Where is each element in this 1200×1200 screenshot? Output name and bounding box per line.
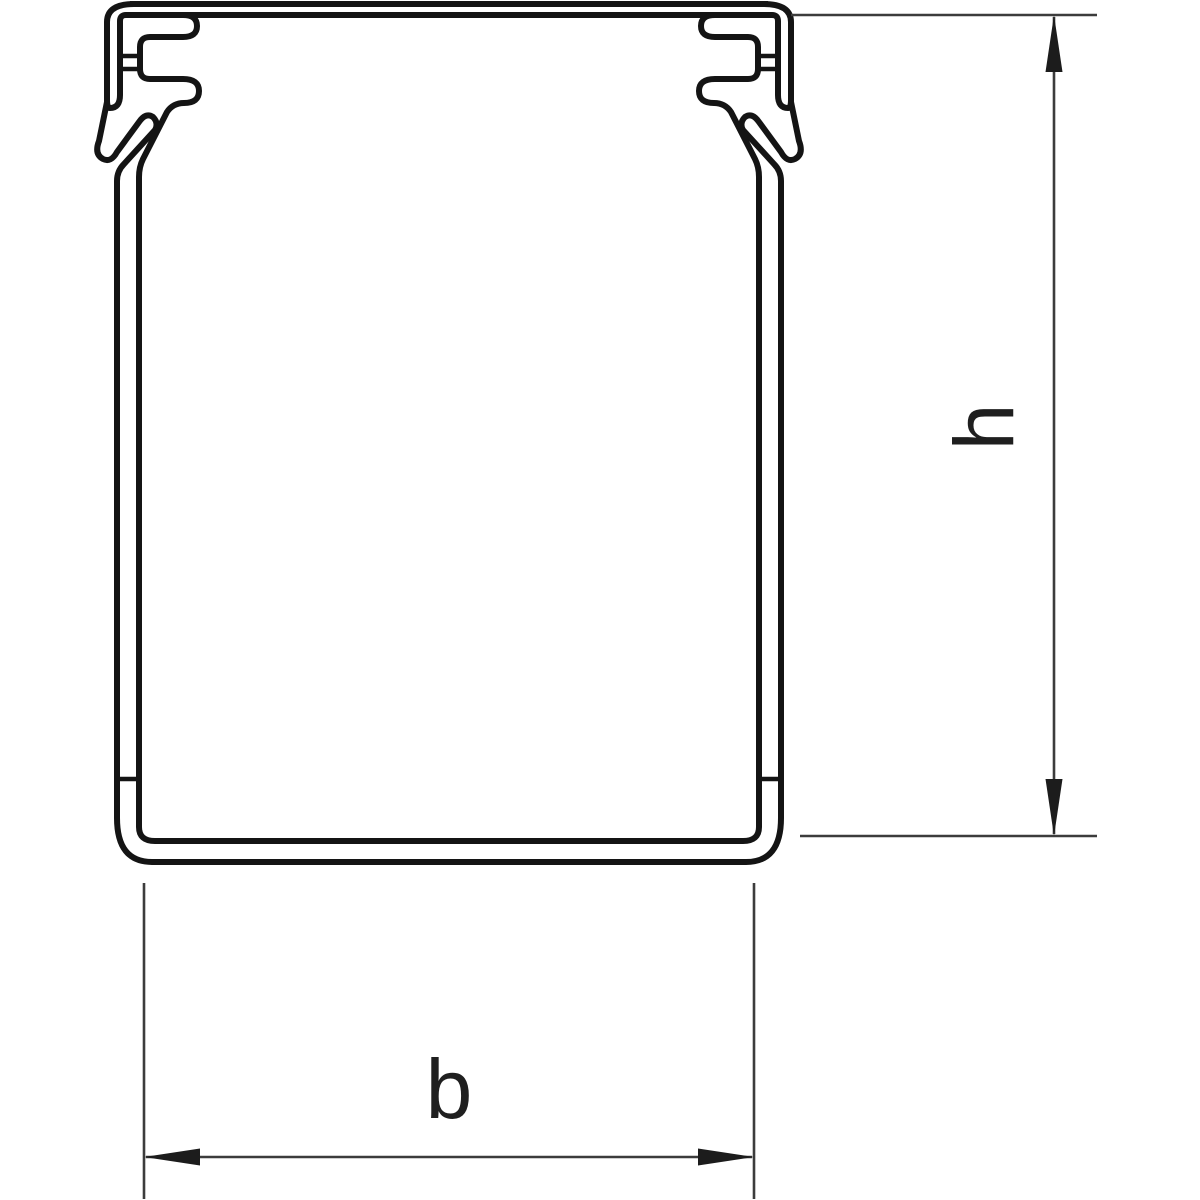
- right-snap-fingers: [446, 15, 759, 841]
- height-label: h: [937, 404, 1031, 451]
- top-inner-edge-left: [107, 15, 452, 108]
- left-outer-contour: [97, 4, 452, 862]
- dimension-arrow-down-icon: [1046, 779, 1063, 836]
- dimension-arrow-right-icon: [698, 1149, 754, 1166]
- right-outer-contour: [446, 4, 801, 862]
- drawing-page: h b: [0, 0, 1200, 1200]
- width-dimension: [144, 883, 754, 1199]
- duct-profile: [97, 4, 801, 862]
- width-label: b: [426, 1042, 473, 1136]
- dimension-arrow-left-icon: [144, 1149, 200, 1166]
- top-inner-edge-right: [446, 15, 791, 108]
- wall-break-ticks: [117, 56, 781, 779]
- dimension-arrow-up-icon: [1046, 15, 1063, 72]
- left-snap-fingers: [139, 15, 452, 841]
- technical-drawing-canvas: h b: [0, 0, 1200, 1200]
